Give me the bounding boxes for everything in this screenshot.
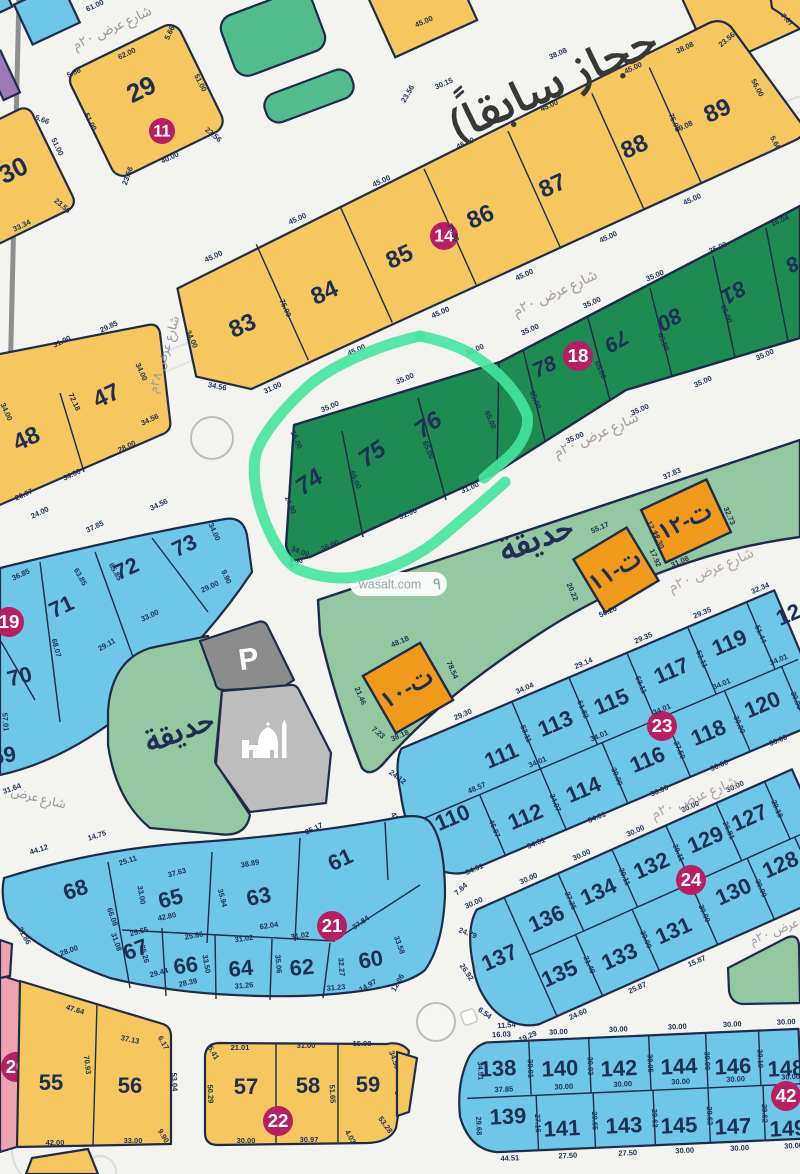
svg-text:60: 60	[356, 945, 384, 974]
svg-text:141: 141	[543, 1115, 581, 1142]
svg-text:139: 139	[489, 1103, 527, 1130]
svg-text:35.06: 35.06	[273, 954, 284, 973]
svg-text:140: 140	[541, 1055, 579, 1082]
svg-text:30.00: 30.00	[671, 1077, 690, 1087]
svg-text:30.00: 30.00	[668, 1022, 687, 1032]
svg-text:30.00: 30.00	[549, 1027, 568, 1037]
svg-text:42.00: 42.00	[46, 1138, 65, 1147]
svg-text:27.16: 27.16	[533, 1114, 543, 1133]
svg-text:62: 62	[289, 954, 316, 981]
svg-text:27.50: 27.50	[558, 1151, 577, 1161]
svg-text:30.00: 30.00	[554, 1082, 573, 1092]
svg-text:50.29: 50.29	[206, 1084, 216, 1103]
svg-text:22: 22	[268, 1110, 289, 1131]
svg-text:24: 24	[681, 869, 702, 890]
svg-text:30.00: 30.00	[777, 1017, 796, 1027]
svg-text:29.68: 29.68	[474, 1116, 484, 1135]
svg-text:30.00: 30.00	[730, 1143, 749, 1153]
svg-text:15.98: 15.98	[353, 1039, 372, 1048]
svg-text:30.05: 30.05	[645, 1054, 655, 1073]
svg-text:57: 57	[234, 1074, 258, 1099]
svg-text:21.01: 21.01	[231, 1043, 250, 1052]
svg-text:32.27: 32.27	[336, 957, 347, 976]
svg-text:30.00: 30.00	[726, 1074, 745, 1084]
svg-text:51.65: 51.65	[328, 1084, 338, 1103]
svg-text:18: 18	[568, 345, 589, 366]
svg-text:144: 144	[660, 1053, 699, 1080]
svg-text:27.50: 27.50	[618, 1148, 637, 1158]
svg-text:21: 21	[322, 915, 343, 936]
svg-text:30.00: 30.00	[781, 1072, 800, 1082]
svg-text:58: 58	[296, 1073, 320, 1098]
svg-text:42: 42	[776, 1085, 797, 1106]
svg-text:33.00: 33.00	[124, 1136, 143, 1145]
svg-text:30.00: 30.00	[675, 1146, 694, 1156]
svg-text:30.00: 30.00	[237, 1136, 256, 1145]
svg-text:63: 63	[244, 882, 273, 912]
svg-text:30.00: 30.00	[613, 1079, 632, 1089]
svg-text:142: 142	[600, 1055, 638, 1082]
svg-text:30.00: 30.00	[723, 1019, 742, 1029]
svg-text:31.23: 31.23	[326, 982, 345, 993]
svg-text:16.03: 16.03	[492, 1029, 511, 1039]
svg-text:56: 56	[118, 1073, 142, 1098]
svg-text:30.00: 30.00	[784, 1141, 800, 1151]
svg-text:149: 149	[769, 1115, 800, 1142]
svg-text:44.51: 44.51	[500, 1153, 519, 1163]
svg-text:29.62: 29.62	[760, 1104, 770, 1123]
svg-text:29.62: 29.62	[705, 1106, 715, 1125]
svg-text:29.65: 29.65	[590, 1111, 600, 1130]
svg-text:57.01: 57.01	[0, 712, 11, 731]
svg-text:143: 143	[605, 1112, 643, 1139]
svg-text:11: 11	[153, 122, 170, 140]
svg-text:30.01: 30.01	[526, 1059, 536, 1078]
svg-text:53.04: 53.04	[170, 1072, 180, 1092]
svg-text:59: 59	[356, 1072, 380, 1097]
svg-text:64: 64	[228, 955, 255, 982]
svg-text:30.97: 30.97	[300, 1135, 319, 1144]
svg-text:147: 147	[714, 1113, 752, 1140]
svg-text:31.00: 31.00	[297, 1041, 316, 1050]
svg-text:55: 55	[39, 1070, 63, 1095]
svg-text:30.08: 30.08	[702, 1051, 712, 1070]
svg-text:145: 145	[660, 1112, 698, 1139]
svg-text:30.00: 30.00	[609, 1024, 628, 1034]
svg-text:37.85: 37.85	[494, 1084, 513, 1094]
svg-text:30.03: 30.03	[586, 1056, 596, 1075]
svg-text:34.51: 34.51	[476, 1061, 486, 1080]
svg-text:29.63: 29.63	[650, 1109, 660, 1128]
svg-text:30.10: 30.10	[755, 1049, 765, 1068]
svg-text:66: 66	[172, 951, 200, 979]
svg-text:19: 19	[0, 611, 19, 632]
svg-text:31.26: 31.26	[234, 980, 253, 991]
svg-text:23: 23	[652, 715, 673, 736]
